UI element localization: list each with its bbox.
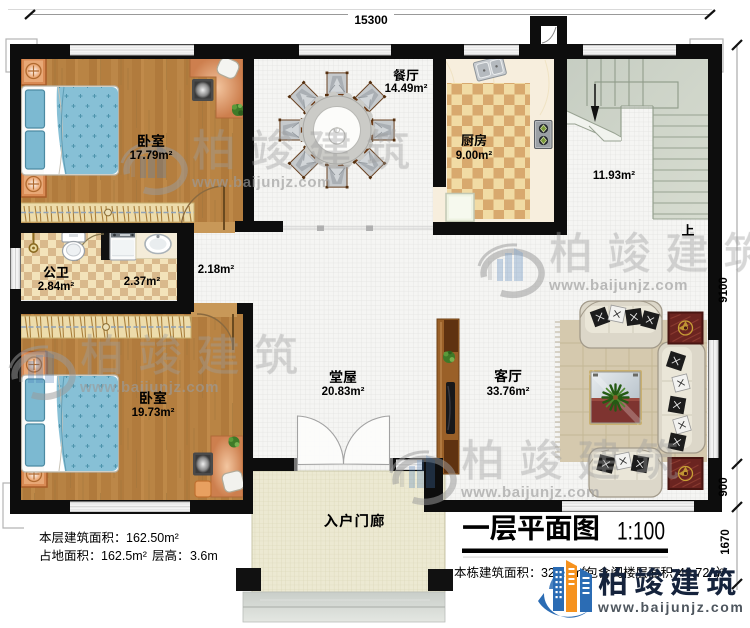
svg-text:2.18m²: 2.18m² — [198, 264, 235, 276]
svg-text:1:100: 1:100 — [617, 518, 665, 546]
svg-text:33.76m²: 33.76m² — [487, 386, 530, 398]
svg-text:162.50m²: 162.50m² — [126, 531, 179, 545]
svg-text:2.37m²: 2.37m² — [124, 276, 161, 288]
svg-text:9100: 9100 — [718, 277, 730, 303]
svg-text:17.79m²: 17.79m² — [130, 150, 173, 162]
svg-text:2.84m²: 2.84m² — [38, 281, 75, 293]
svg-text:14.49m²: 14.49m² — [385, 83, 428, 95]
svg-text:20.83m²: 20.83m² — [322, 386, 365, 398]
svg-text:11.93m²: 11.93m² — [593, 170, 635, 182]
svg-text:3.6m: 3.6m — [190, 549, 218, 563]
svg-text:15300: 15300 — [354, 13, 388, 27]
svg-text:900: 900 — [718, 477, 730, 496]
svg-text:1670: 1670 — [720, 529, 732, 555]
svg-text:162.5m²: 162.5m² — [101, 549, 147, 563]
svg-text:www.baijunjz.com: www.baijunjz.com — [597, 599, 744, 615]
svg-text:19.73m²: 19.73m² — [132, 407, 175, 419]
svg-text:9.00m²: 9.00m² — [456, 150, 493, 162]
